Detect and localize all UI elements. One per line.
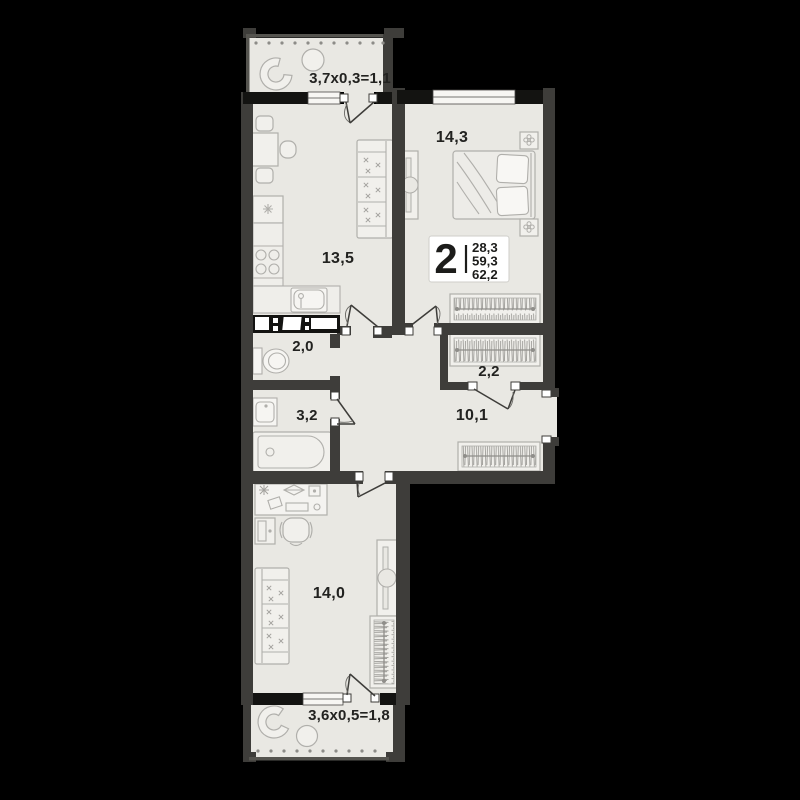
- bed: [453, 151, 535, 219]
- kitchen-sink: [291, 288, 327, 312]
- wall-left-exterior: [241, 92, 253, 705]
- toilet: [253, 348, 289, 374]
- label-bathroom: 3,2: [296, 407, 317, 424]
- nightstand-top: [520, 132, 538, 149]
- room-tv-stand: [377, 540, 397, 616]
- bathtub: [253, 432, 331, 472]
- nightstand-bottom: [520, 219, 538, 236]
- label-bedroom: 14,3: [436, 129, 468, 146]
- room-window: [303, 693, 343, 705]
- balcony-bottom-table: [297, 726, 318, 747]
- room-sofa: [255, 568, 289, 664]
- floor-entrance-opening: [543, 397, 557, 437]
- label-hallway: 10,1: [456, 407, 488, 424]
- bedroom-window: [433, 90, 515, 104]
- desk: [255, 484, 327, 515]
- balcony-top-table: [302, 49, 324, 71]
- closet-wardrobe: [450, 334, 540, 366]
- wall-right-exterior: [543, 88, 555, 390]
- badge-rooms-count: 2: [434, 235, 457, 282]
- label-wc: 2,0: [292, 338, 313, 355]
- bathroom-sink: [253, 398, 277, 426]
- kitchen-sofa: [357, 140, 393, 238]
- room-wardrobe: [370, 616, 398, 688]
- floorplan-canvas: 3,7x0,3=1,1 14,3 13,5 2,0 2,2 3,2 10,1 1…: [0, 0, 800, 800]
- label-balcony-top: 3,7x0,3=1,1: [309, 70, 391, 87]
- wall-room-right: [396, 471, 410, 705]
- fridge: [253, 196, 283, 223]
- wall-kitchen-bedroom: [392, 88, 405, 335]
- wall-closet-left: [440, 335, 448, 385]
- badge-area-total: 62,2: [472, 267, 498, 282]
- desk-shelf: [255, 518, 275, 544]
- hallway-wardrobe: [458, 442, 540, 471]
- kitchen-window: [308, 92, 340, 104]
- label-room: 14,0: [313, 585, 345, 602]
- bedroom-wardrobe: [450, 294, 540, 324]
- floorplan-svg: 3,7x0,3=1,1 14,3 13,5 2,0 2,2 3,2 10,1 1…: [0, 0, 800, 800]
- utility-shaft: [253, 315, 340, 333]
- apartment-badge: 2 28,3 59,3 62,2: [429, 235, 509, 282]
- wall-wc-bathroom: [253, 380, 340, 390]
- label-kitchen-living: 13,5: [322, 250, 354, 267]
- label-balcony-bottom: 3,6x0,5=1,8: [308, 707, 390, 724]
- label-closet: 2,2: [478, 363, 499, 380]
